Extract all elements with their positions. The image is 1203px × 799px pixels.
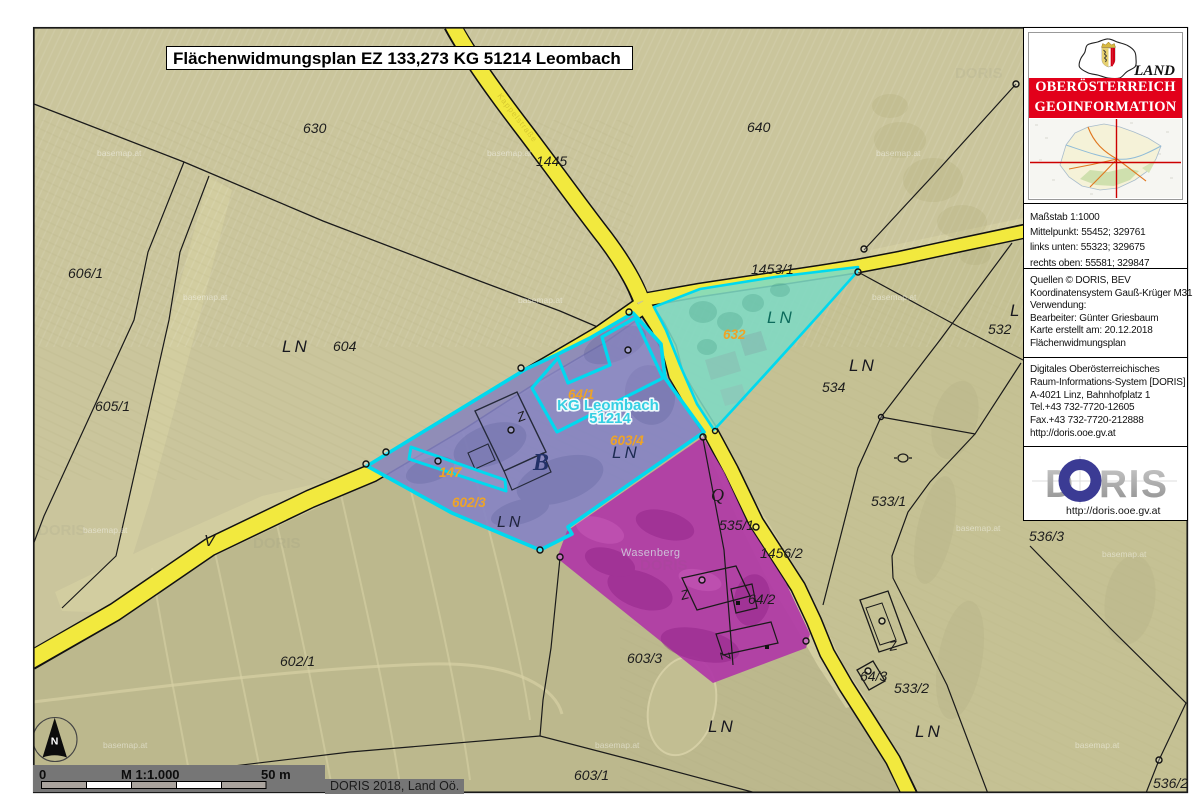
svg-text:536/2: 536/2 bbox=[1153, 775, 1188, 791]
svg-text:605/1: 605/1 bbox=[95, 398, 130, 414]
svg-text:64/3: 64/3 bbox=[860, 668, 887, 684]
svg-text:606/1: 606/1 bbox=[68, 265, 103, 281]
svg-text:basemap.at: basemap.at bbox=[83, 525, 128, 535]
svg-text:basemap.at: basemap.at bbox=[872, 292, 917, 302]
svg-text:51214: 51214 bbox=[589, 410, 631, 427]
svg-text:1456/2: 1456/2 bbox=[760, 545, 803, 561]
svg-text:LN: LN bbox=[708, 717, 736, 736]
svg-text:LN: LN bbox=[915, 722, 943, 741]
svg-text:535/1: 535/1 bbox=[719, 517, 754, 533]
svg-text:603/3: 603/3 bbox=[627, 650, 662, 666]
svg-text:533/2: 533/2 bbox=[894, 680, 929, 696]
svg-text:602/1: 602/1 bbox=[280, 653, 315, 669]
svg-text:LN: LN bbox=[849, 356, 877, 375]
svg-text:basemap.at: basemap.at bbox=[956, 523, 1001, 533]
svg-text:basemap.at: basemap.at bbox=[876, 148, 921, 158]
svg-text:640: 640 bbox=[747, 119, 771, 135]
svg-text:V: V bbox=[204, 533, 216, 550]
svg-text:basemap.at: basemap.at bbox=[183, 292, 228, 302]
svg-text:604: 604 bbox=[333, 338, 357, 354]
svg-text:533/1: 533/1 bbox=[871, 493, 906, 509]
svg-text:603/1: 603/1 bbox=[574, 767, 609, 783]
svg-text:L: L bbox=[1010, 301, 1022, 320]
svg-text:RIS: RIS bbox=[1099, 463, 1169, 506]
svg-text:603/4: 603/4 bbox=[610, 433, 644, 448]
svg-text:532: 532 bbox=[988, 321, 1012, 337]
svg-text:Q: Q bbox=[711, 485, 724, 505]
svg-text:1445: 1445 bbox=[536, 153, 567, 169]
svg-text:DORIS: DORIS bbox=[955, 65, 1003, 82]
svg-text:602/3: 602/3 bbox=[452, 495, 486, 510]
svg-text:basemap.at: basemap.at bbox=[595, 740, 640, 750]
svg-text:DORIS: DORIS bbox=[38, 522, 86, 539]
svg-text:147: 147 bbox=[439, 465, 463, 480]
svg-text:basemap.at: basemap.at bbox=[487, 148, 532, 158]
svg-text:DORIS: DORIS bbox=[640, 557, 688, 574]
svg-text:630: 630 bbox=[303, 120, 327, 136]
svg-text:basemap.at: basemap.at bbox=[518, 295, 563, 305]
svg-text:N: N bbox=[51, 736, 59, 748]
svg-text:LN: LN bbox=[282, 337, 310, 356]
svg-text:basemap.at: basemap.at bbox=[97, 148, 142, 158]
svg-text:basemap.at: basemap.at bbox=[1075, 740, 1120, 750]
svg-text:basemap.at: basemap.at bbox=[103, 740, 148, 750]
svg-text:DORIS: DORIS bbox=[253, 535, 301, 552]
svg-text:1453/1: 1453/1 bbox=[751, 261, 794, 277]
svg-text:632: 632 bbox=[723, 327, 746, 342]
svg-text:64/2: 64/2 bbox=[748, 591, 775, 607]
svg-text:534: 534 bbox=[822, 379, 846, 395]
svg-text:LN: LN bbox=[497, 514, 523, 531]
svg-text:LN: LN bbox=[767, 308, 795, 327]
svg-text:basemap.at: basemap.at bbox=[1102, 549, 1147, 559]
svg-text:B: B bbox=[532, 450, 549, 476]
svg-text:536/3: 536/3 bbox=[1029, 528, 1064, 544]
